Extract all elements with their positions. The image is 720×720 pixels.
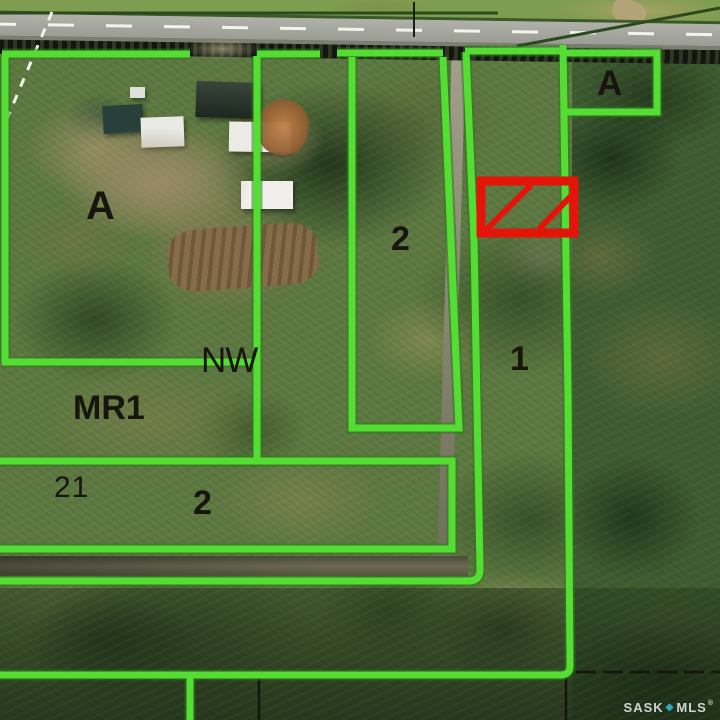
section-label-21: 21 bbox=[54, 473, 89, 503]
parcel-boundary-glow bbox=[0, 45, 657, 720]
parcel-label-mr1: MR1 bbox=[73, 391, 145, 425]
survey-dashed-line bbox=[4, 12, 52, 126]
parcel-label-1: 1 bbox=[510, 342, 529, 376]
parcel-label-a-west: A bbox=[86, 186, 115, 226]
parcel-label-2-north: 2 bbox=[391, 222, 410, 256]
mls-watermark: SASK ◆ MLS ® bbox=[624, 700, 714, 715]
parcel-boundaries-overlay bbox=[0, 0, 720, 720]
registered-trademark-symbol: ® bbox=[708, 700, 714, 707]
highlighted-parcel-hatch bbox=[487, 185, 571, 229]
section-black-lines bbox=[259, 677, 566, 720]
watermark-brand-sask: SASK bbox=[624, 700, 664, 715]
parcel-boundary-lines bbox=[0, 45, 657, 720]
diamond-icon: ◆ bbox=[666, 702, 675, 713]
parcel-label-a-northeast: A bbox=[597, 66, 622, 101]
section-line-dark-top bbox=[0, 8, 720, 46]
aerial-parcel-map: A A 2 1 NW MR1 21 2 SASK ◆ MLS ® bbox=[0, 0, 720, 720]
watermark-brand-mls: MLS bbox=[676, 700, 706, 715]
quarter-section-label-nw: NW bbox=[201, 343, 257, 378]
parcel-label-2-south: 2 bbox=[193, 486, 212, 520]
